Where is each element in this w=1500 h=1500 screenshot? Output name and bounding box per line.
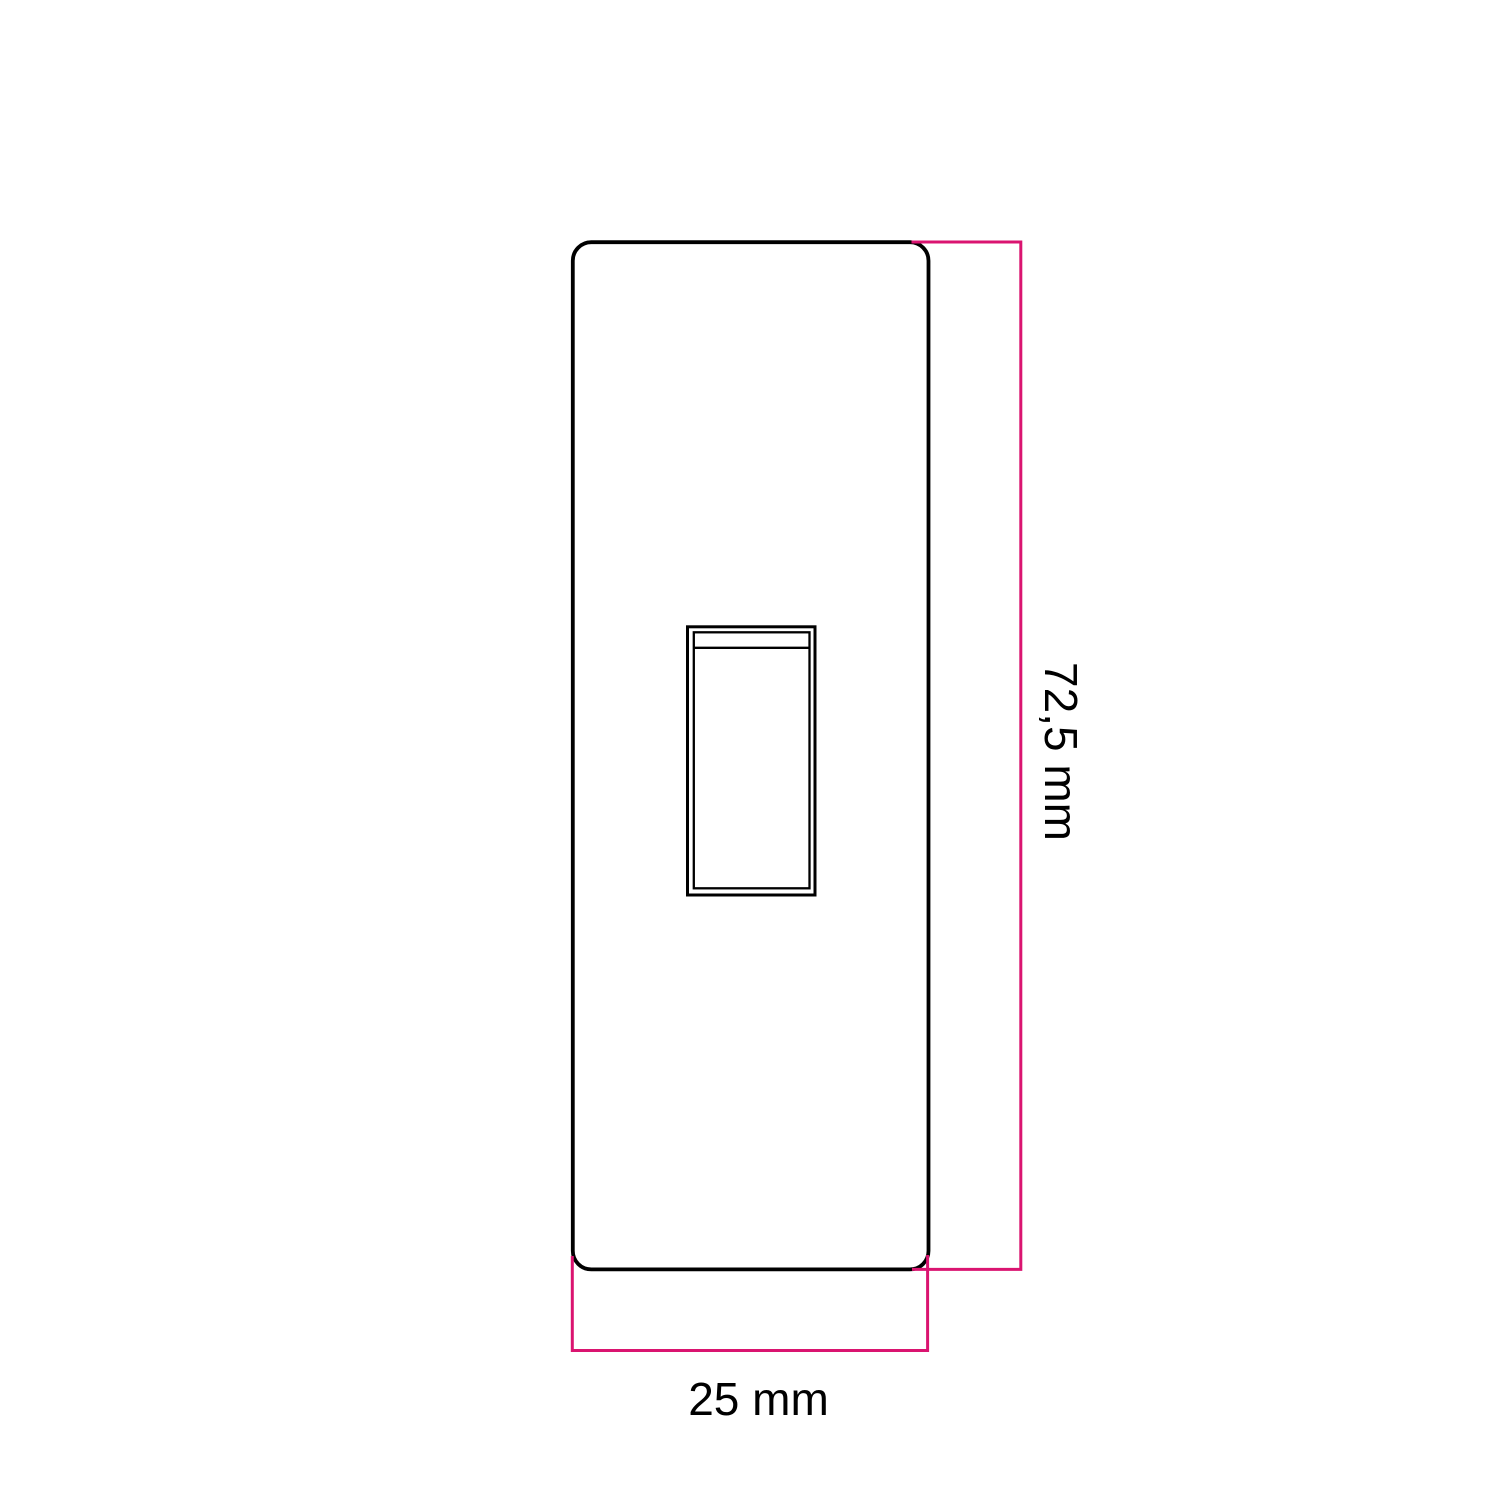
svg-text:25 mm: 25 mm [688,1373,829,1425]
svg-text:72,5 mm: 72,5 mm [1035,662,1087,841]
